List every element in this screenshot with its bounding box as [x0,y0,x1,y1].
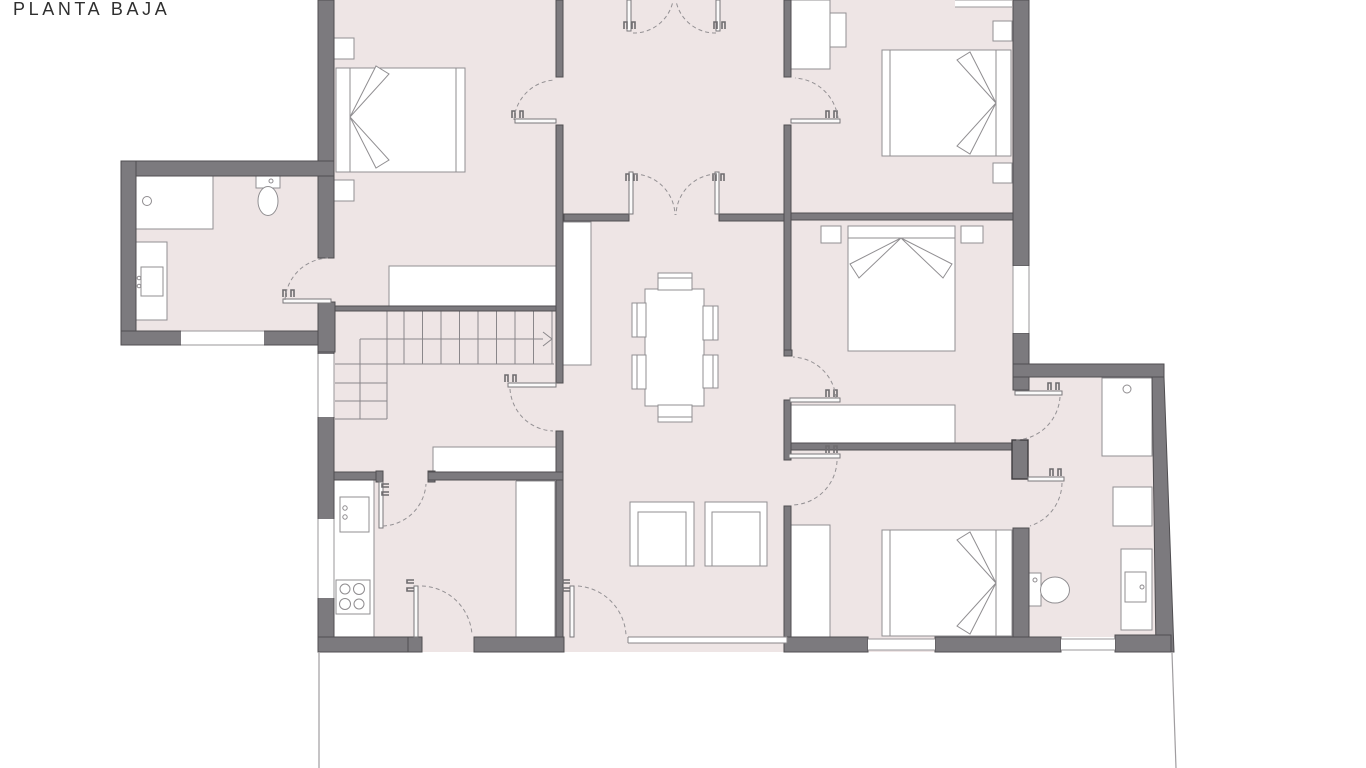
svg-text:PLANTA BAJA: PLANTA BAJA [13,0,170,19]
